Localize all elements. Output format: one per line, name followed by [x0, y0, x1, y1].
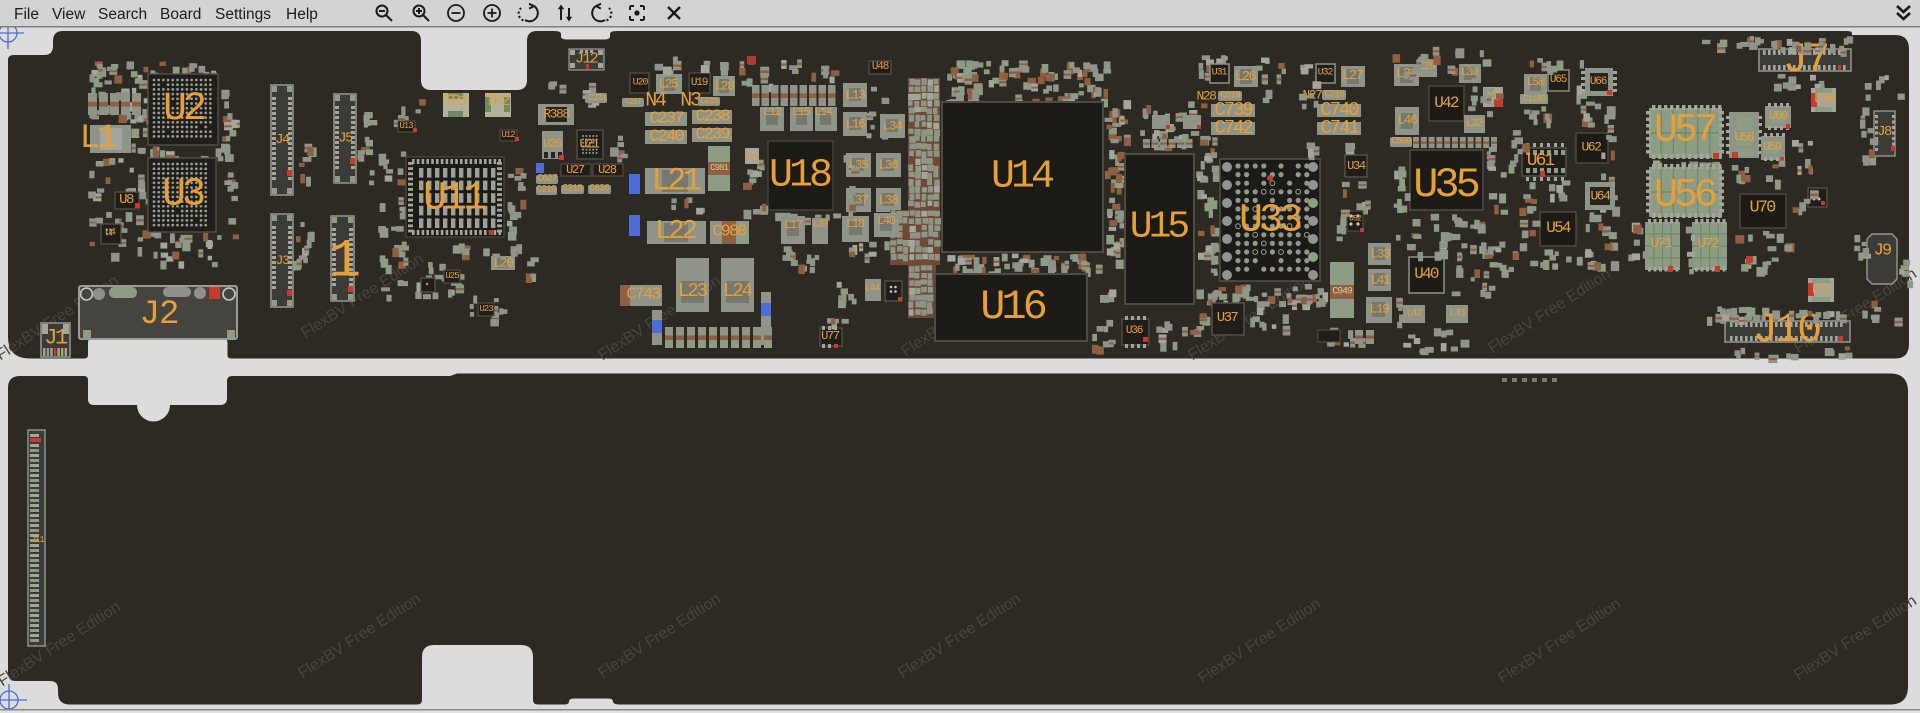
svg-text:N28: N28	[1196, 89, 1216, 104]
svg-text:L28: L28	[714, 79, 734, 94]
svg-text:C218: C218	[562, 184, 583, 195]
svg-text:U42: U42	[1434, 94, 1459, 112]
svg-text:U40: U40	[1414, 265, 1439, 283]
svg-text:L12: L12	[763, 105, 782, 119]
svg-text:C238: C238	[695, 108, 730, 127]
svg-text:L32: L32	[1466, 118, 1483, 130]
svg-text:U3: U3	[162, 173, 204, 218]
svg-text:U15: U15	[1130, 206, 1189, 249]
svg-text:U54: U54	[1546, 219, 1571, 237]
svg-text:L58: L58	[1527, 77, 1544, 89]
svg-text:C627: C627	[537, 174, 558, 185]
svg-text:1: 1	[329, 232, 359, 293]
svg-text:U48: U48	[872, 61, 889, 73]
svg-text:L18: L18	[846, 217, 865, 231]
svg-text:U71: U71	[1651, 236, 1673, 252]
svg-text:J2: J2	[140, 296, 179, 334]
svg-text:U60: U60	[1769, 109, 1788, 123]
svg-text:U56: U56	[1654, 174, 1716, 219]
svg-text:J8: J8	[1877, 124, 1892, 140]
svg-text:U19: U19	[691, 77, 708, 89]
svg-text:L24: L24	[723, 280, 753, 302]
svg-text:View: View	[52, 6, 86, 23]
svg-text:U65: U65	[1550, 74, 1567, 86]
svg-text:C741: C741	[1320, 117, 1359, 139]
svg-text:J11: J11	[30, 535, 44, 545]
svg-text:L1: L1	[80, 120, 116, 158]
svg-text:L44: L44	[865, 284, 881, 295]
svg-text:U66: U66	[1590, 76, 1607, 88]
svg-text:U11: U11	[423, 177, 486, 222]
svg-text:TP2: TP2	[485, 92, 510, 110]
svg-text:J5: J5	[338, 131, 353, 147]
svg-text:C215: C215	[700, 96, 718, 106]
svg-text:L42: L42	[1407, 309, 1423, 320]
svg-text:J1: J1	[44, 326, 68, 351]
svg-text:U13: U13	[399, 121, 413, 131]
svg-text:C237: C237	[649, 110, 683, 129]
svg-text:L14: L14	[814, 105, 833, 119]
svg-text:L39: L39	[813, 220, 829, 231]
svg-text:File: File	[14, 6, 39, 23]
svg-text:U16: U16	[980, 283, 1045, 331]
svg-text:C981: C981	[710, 163, 728, 173]
svg-text:U8: U8	[119, 192, 134, 208]
svg-text:C500: C500	[1391, 137, 1412, 148]
svg-text:L16: L16	[845, 117, 865, 132]
svg-text:U2: U2	[163, 87, 205, 132]
svg-text:C221: C221	[588, 93, 606, 103]
svg-text:C743: C743	[626, 286, 661, 305]
svg-text:TP1: TP1	[443, 92, 468, 110]
svg-text:J4: J4	[275, 132, 290, 148]
svg-text:U31: U31	[1212, 68, 1228, 79]
svg-text:U70: U70	[1750, 199, 1777, 218]
svg-text:U34: U34	[1347, 159, 1366, 173]
svg-text:L17: L17	[784, 218, 803, 232]
svg-text:L26: L26	[1235, 69, 1257, 85]
svg-text:U72: U72	[1698, 236, 1720, 252]
svg-text:Help: Help	[286, 6, 318, 23]
svg-text:U25: U25	[445, 271, 459, 281]
svg-text:J9: J9	[1874, 242, 1892, 261]
svg-text:C949: C949	[1332, 287, 1353, 298]
svg-text:L33: L33	[1370, 247, 1390, 262]
svg-text:L36: L36	[878, 158, 898, 173]
svg-text:U61: U61	[1527, 151, 1555, 171]
svg-text:U58: U58	[1734, 130, 1754, 145]
svg-text:J12: J12	[575, 51, 598, 68]
svg-text:C1109: C1109	[1523, 94, 1546, 104]
svg-text:L61: L61	[1811, 282, 1832, 297]
svg-text:U35: U35	[1413, 161, 1478, 209]
svg-text:Settings: Settings	[215, 6, 271, 23]
svg-text:U64: U64	[1590, 189, 1611, 204]
svg-text:J3: J3	[276, 253, 289, 268]
svg-text:L40: L40	[877, 214, 896, 228]
svg-text:L38: L38	[878, 193, 898, 208]
svg-text:L21: L21	[651, 163, 700, 200]
svg-text:L13: L13	[845, 88, 865, 103]
svg-text:Search: Search	[98, 6, 147, 23]
svg-text:U18: U18	[769, 154, 831, 199]
svg-text:C240: C240	[649, 128, 684, 147]
svg-text:L41: L41	[1370, 273, 1391, 288]
svg-text:L46: L46	[1397, 113, 1417, 128]
svg-text:C742: C742	[1214, 117, 1253, 139]
svg-text:C219: C219	[536, 185, 557, 196]
svg-text:U62: U62	[1581, 140, 1601, 155]
svg-text:U21: U21	[579, 137, 600, 152]
svg-text:U77: U77	[821, 329, 840, 343]
svg-text:U28: U28	[598, 163, 617, 177]
svg-text:L60: L60	[1814, 91, 1836, 107]
svg-text:L43: L43	[1450, 309, 1466, 320]
svg-text:U14: U14	[991, 155, 1053, 200]
svg-text:Y2: Y2	[746, 150, 759, 164]
svg-text:U37: U37	[1217, 310, 1239, 326]
svg-text:L22: L22	[655, 217, 696, 247]
svg-text:C980: C980	[712, 223, 747, 242]
svg-text:U26: U26	[543, 137, 562, 151]
svg-text:L19: L19	[1369, 302, 1389, 317]
svg-text:L20: L20	[493, 256, 513, 271]
svg-text:R388: R388	[543, 107, 569, 122]
svg-text:Board: Board	[160, 6, 201, 23]
svg-text:U32: U32	[1318, 68, 1334, 79]
svg-text:U33: U33	[1239, 199, 1301, 244]
svg-text:U20: U20	[633, 78, 649, 89]
svg-text:C239: C239	[695, 126, 730, 145]
svg-text:L15: L15	[792, 105, 811, 119]
svg-text:U57: U57	[1654, 109, 1715, 154]
svg-text:L23: L23	[678, 280, 708, 302]
svg-text:U12: U12	[501, 130, 515, 140]
svg-text:U27: U27	[566, 163, 585, 177]
svg-text:U52: U52	[1349, 215, 1362, 224]
svg-text:U59: U59	[1763, 140, 1782, 154]
svg-text:U23: U23	[479, 304, 493, 314]
svg-text:C217: C217	[625, 98, 642, 107]
svg-text:U4: U4	[105, 228, 116, 239]
svg-text:U36: U36	[1126, 325, 1143, 337]
svg-text:L27: L27	[1342, 68, 1364, 84]
svg-text:C626: C626	[589, 184, 610, 195]
